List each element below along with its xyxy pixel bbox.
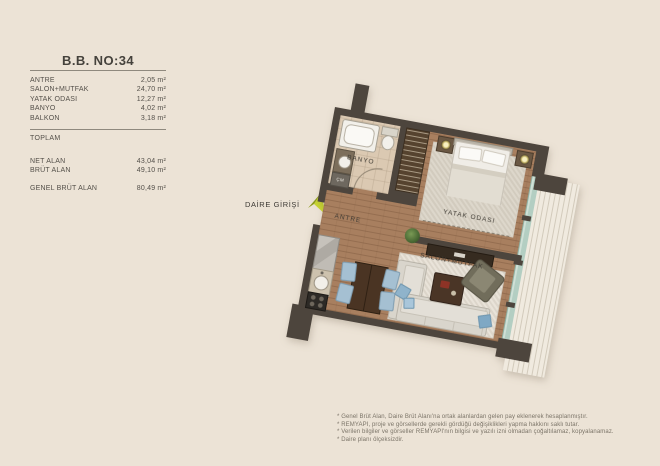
floor-plan: ÇM [293, 107, 581, 379]
room-label: SALON+MUTFAK [30, 86, 89, 93]
table-row: SALON+MUTFAK 24,70 m² [30, 86, 166, 93]
dining-chair [340, 261, 357, 282]
table-row: ANTRE 2,05 m² [30, 77, 166, 84]
total-value: 80,49 m² [137, 185, 166, 192]
room-label: YATAK ODASI [30, 96, 77, 103]
total-value: 43,04 m² [137, 158, 166, 165]
room-value: 4,02 m² [141, 105, 166, 112]
bedside-lamp [518, 154, 530, 166]
total-label: BRÜT ALAN [30, 167, 71, 174]
tv [454, 252, 466, 258]
pillow [458, 146, 483, 162]
general-gross-row: GENEL BRÜT ALAN 80,49 m² [30, 185, 166, 192]
coffee-table [429, 272, 466, 306]
table-row: BALKON 3,18 m² [30, 115, 166, 122]
brochure-page: B.B. NO:34 ANTRE 2,05 m² SALON+MUTFAK 24… [0, 0, 660, 466]
pillow [481, 149, 506, 167]
table-row: YATAK ODASI 12,27 m² [30, 96, 166, 103]
footnote-line: * Verilen bilgiler ve görseller REMYAPI'… [337, 429, 614, 437]
room-value: 24,70 m² [137, 86, 166, 93]
footnote-line: * Genel Brüt Alan, Daire Brüt Alanı'na o… [337, 414, 614, 422]
bedside-lamp [440, 139, 452, 151]
net-area-row: NET ALAN 43,04 m² [30, 158, 166, 165]
room-label: ANTRE [30, 77, 55, 84]
total-value: 49,10 m² [137, 167, 166, 174]
throw-pillow [403, 298, 414, 309]
page-title: B.B. NO:34 [30, 53, 166, 68]
area-table: ANTRE 2,05 m² SALON+MUTFAK 24,70 m² YATA… [30, 77, 166, 122]
room-label: BANYO [30, 105, 56, 112]
gross-area-row: BRÜT ALAN 49,10 m² [30, 167, 166, 174]
footnote-line: * Daire planı ölçeksizdir. [337, 437, 614, 445]
divider [30, 129, 166, 130]
room-value: 2,05 m² [141, 77, 166, 84]
footnote-line: * REMYAPI, proje ve görsellerde gerekli … [337, 422, 614, 430]
dining-chair [378, 291, 395, 312]
wall-stub-top [350, 83, 369, 114]
nightstand [514, 150, 534, 169]
footnotes: * Genel Brüt Alan, Daire Brüt Alanı'na o… [337, 414, 614, 444]
bed [446, 141, 511, 206]
table-row: BANYO 4,02 m² [30, 105, 166, 112]
divider [30, 70, 166, 71]
faucet [320, 271, 323, 274]
room-value: 12,27 m² [137, 96, 166, 103]
total-label: NET ALAN [30, 158, 65, 165]
room-label: BALKON [30, 115, 60, 122]
total-label: GENEL BRÜT ALAN [30, 185, 97, 192]
stove [305, 291, 329, 312]
kitchen-sink [312, 274, 329, 291]
general-gross-table: GENEL BRÜT ALAN 80,49 m² [30, 185, 166, 192]
totals-table: NET ALAN 43,04 m² BRÜT ALAN 49,10 m² [30, 158, 166, 174]
entrance-label: DAİRE GİRİŞİ [245, 200, 300, 209]
wall-stub-bottom-left [286, 304, 314, 341]
room-value: 3,18 m² [141, 115, 166, 122]
throw-pillow [478, 314, 493, 329]
subtotal-label: TOPLAM [30, 135, 60, 142]
